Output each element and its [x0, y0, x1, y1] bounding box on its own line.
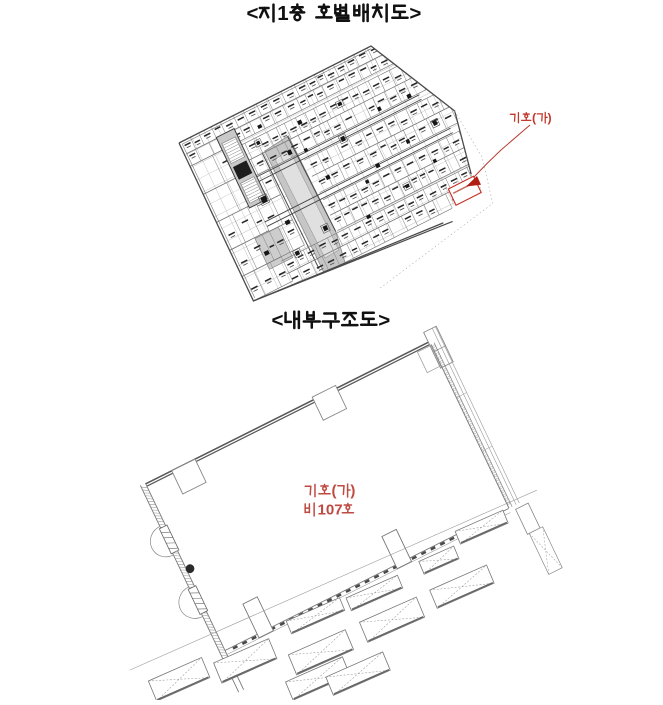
- svg-text:>: >: [378, 309, 390, 332]
- svg-text:>: >: [409, 2, 421, 25]
- svg-text:): ): [548, 111, 552, 125]
- svg-text:107: 107: [318, 502, 343, 519]
- svg-text:(: (: [532, 111, 537, 125]
- svg-text:): ): [350, 483, 355, 500]
- svg-text:<: <: [247, 2, 259, 25]
- svg-text:(: (: [332, 483, 338, 500]
- svg-text:<: <: [272, 309, 284, 332]
- svg-text:1: 1: [277, 2, 288, 25]
